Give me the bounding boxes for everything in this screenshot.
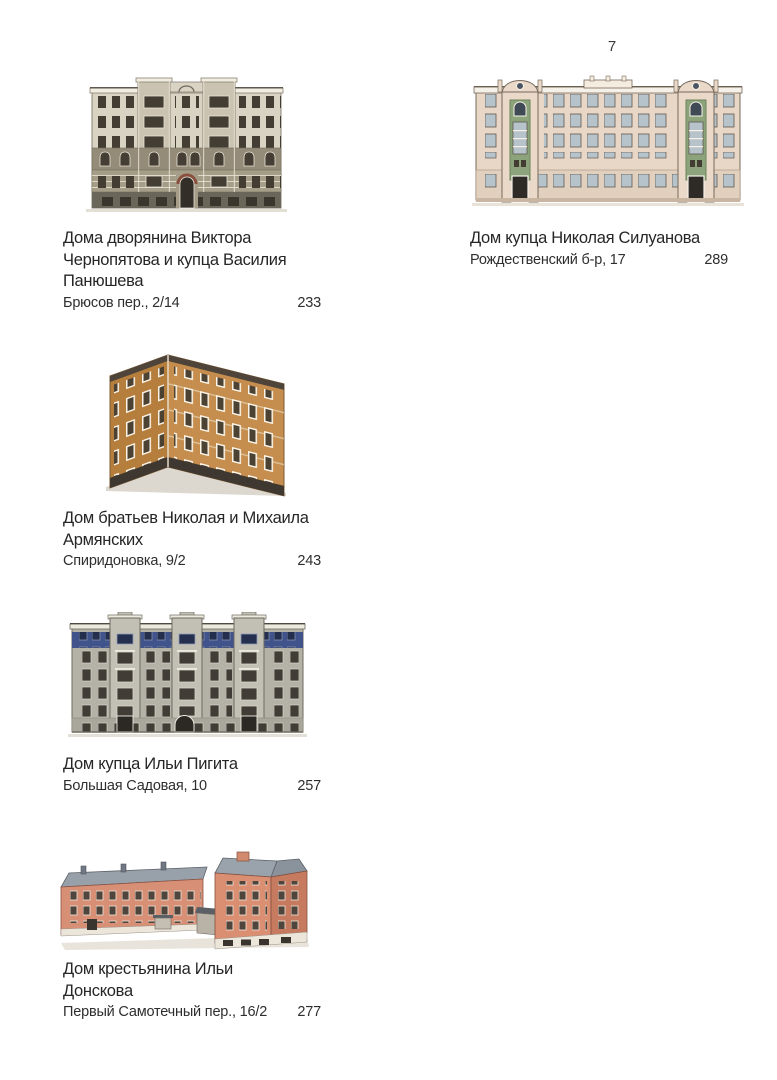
- page-reference: 243: [297, 552, 321, 571]
- page-reference: 277: [297, 1003, 321, 1022]
- building-address: Первый Самотечный пер., 16/2: [63, 1003, 267, 1022]
- building-illustration-siluanov-house: [468, 70, 728, 210]
- building-illustration-chernopyatov-house: [84, 72, 321, 215]
- building-title: Дома дворянина Виктора Чернопятова и куп…: [63, 228, 321, 293]
- building-title: Дом братьев Николая и Михаила Армянских: [63, 508, 321, 551]
- catalog-entry: Дома дворянина Виктора Чернопятова и куп…: [63, 72, 321, 313]
- building-drawing: [84, 72, 289, 215]
- building-drawing: [102, 335, 290, 497]
- page-reference: 257: [297, 777, 321, 796]
- catalog-entry: Дом крестьянина Ильи Донскова Первый Сам…: [63, 843, 321, 1022]
- building-drawing: [468, 70, 748, 210]
- building-illustration-pigit-house: [66, 612, 321, 740]
- catalog-entry: Дом братьев Николая и Михаила Армянских …: [63, 335, 321, 571]
- building-drawing: [66, 612, 309, 740]
- building-address: Большая Садовая, 10: [63, 777, 207, 796]
- building-title: Дом купца Ильи Пигита: [63, 754, 321, 776]
- entry-caption: Дом купца Ильи Пигита Большая Садовая, 1…: [63, 754, 321, 796]
- building-address: Рождественский б-р, 17: [470, 251, 625, 270]
- book-page: 7: [0, 0, 777, 1080]
- page-reference: 233: [297, 294, 321, 313]
- entry-caption: Дом крестьянина Ильи Донскова Первый Сам…: [63, 959, 321, 1022]
- building-illustration-donskov-house: [57, 843, 321, 953]
- building-address: Брюсов пер., 2/14: [63, 294, 180, 313]
- entry-caption: Дома дворянина Виктора Чернопятова и куп…: [63, 228, 321, 313]
- building-drawing: [57, 843, 317, 953]
- entry-caption: Дом братьев Николая и Михаила Армянских …: [63, 508, 321, 571]
- building-address: Спиридоновка, 9/2: [63, 552, 185, 571]
- page-reference: 289: [704, 251, 728, 270]
- building-title: Дом купца Николая Силуанова: [470, 228, 728, 250]
- page-number: 7: [598, 38, 626, 55]
- building-illustration-armyansky-house: [102, 335, 321, 497]
- catalog-entry: Дом купца Николая Силуанова Рождественск…: [470, 70, 728, 270]
- building-title: Дом крестьянина Ильи Донскова: [63, 959, 258, 1002]
- entry-caption: Дом купца Николая Силуанова Рождественск…: [470, 228, 728, 270]
- catalog-entry: Дом купца Ильи Пигита Большая Садовая, 1…: [63, 612, 321, 796]
